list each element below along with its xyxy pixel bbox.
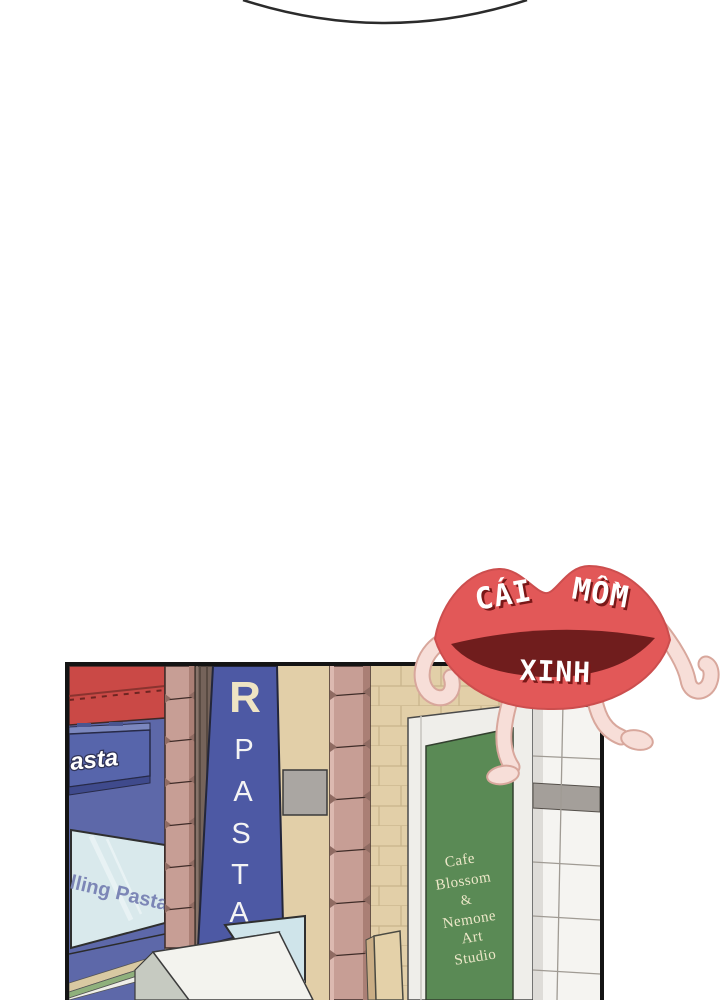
left-foot-icon [486,763,521,786]
sign-letter: P [234,734,253,766]
sign-bracket [283,770,327,815]
lips-mascot-watermark: CÁI CÁI MỒM MỒM XINH XINH [413,553,720,798]
shop-sign-text: asta [69,744,119,776]
stone-quoin-column-left [165,666,195,948]
pedestal-box [366,931,403,1000]
stone-quoin-column-right [330,666,370,1000]
right-foot-icon [619,727,654,752]
sign-mount-tab [109,722,123,726]
webtoon-page: asta lling Pasta [0,0,720,1000]
pasta-storefront: asta lling Pasta [69,666,171,1000]
sign-letter-r: R [229,673,261,722]
sign-letter: S [231,818,250,850]
cafe-sign-line: & [460,892,474,909]
speech-bubble-curve [243,0,527,23]
watermark-word3: XINH [519,654,592,689]
speech-bubble-arc [0,0,720,60]
sign-mount-tab [77,723,91,727]
sign-letter: A [233,776,253,808]
cafe-sign-line: Art [460,928,484,947]
vertical-pasta-sign: R P A S T A [198,666,283,947]
sign-letter: T [231,859,249,891]
